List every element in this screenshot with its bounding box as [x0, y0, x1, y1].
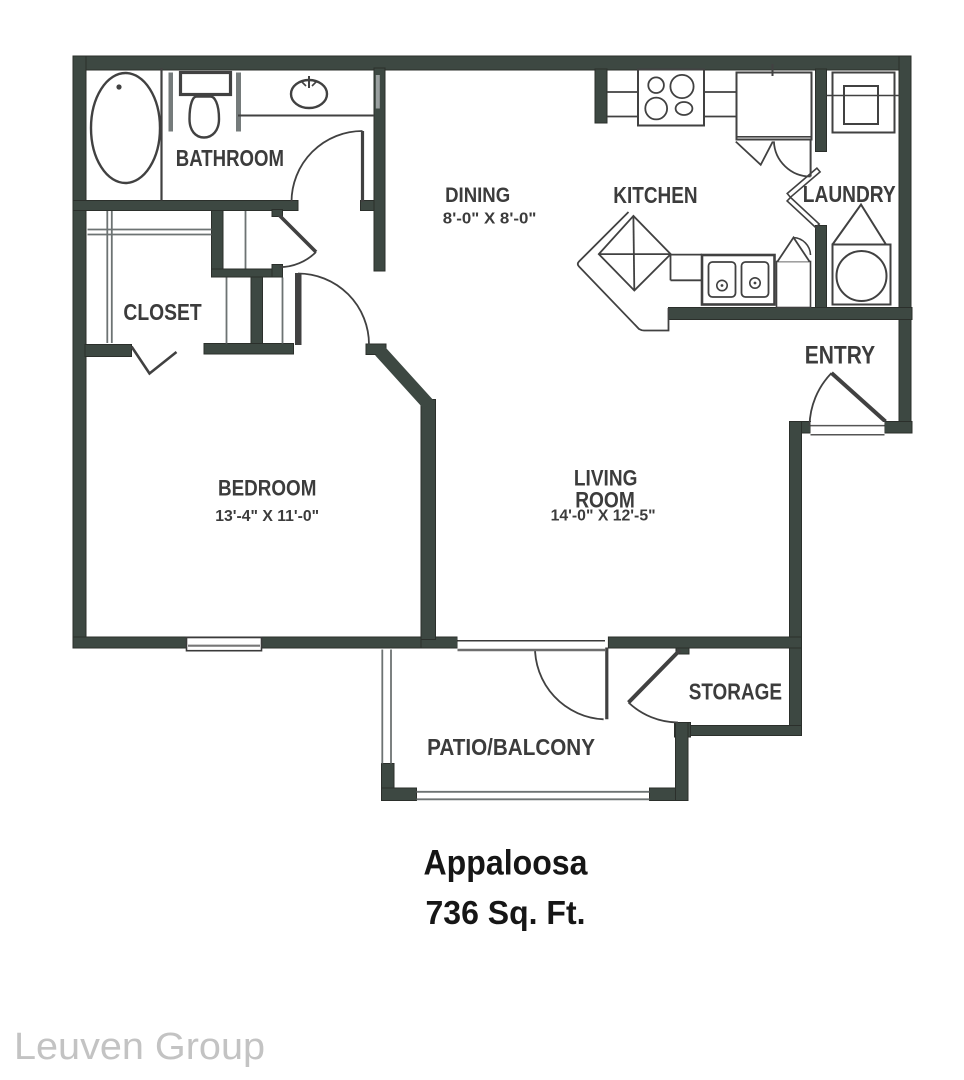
svg-text:STORAGE: STORAGE: [689, 678, 782, 704]
svg-text:ENTRY: ENTRY: [805, 341, 876, 369]
svg-text:PATIO/BALCONY: PATIO/BALCONY: [427, 734, 595, 760]
svg-text:14'-0" X 12'-5": 14'-0" X 12'-5": [551, 507, 656, 524]
svg-text:8'-0" X 8'-0": 8'-0" X 8'-0": [443, 210, 537, 227]
svg-text:KITCHEN: KITCHEN: [613, 182, 697, 208]
svg-text:13'-4" X 11'-0": 13'-4" X 11'-0": [215, 508, 319, 525]
svg-text:BEDROOM: BEDROOM: [218, 475, 316, 500]
svg-text:Appaloosa: Appaloosa: [424, 844, 588, 883]
svg-text:Leuven Group: Leuven Group: [14, 1026, 265, 1068]
svg-text:BATHROOM: BATHROOM: [176, 145, 284, 171]
svg-text:736 Sq. Ft.: 736 Sq. Ft.: [426, 894, 586, 931]
svg-text:LAUNDRY: LAUNDRY: [803, 181, 896, 207]
svg-text:DINING: DINING: [445, 184, 510, 207]
svg-text:CLOSET: CLOSET: [123, 299, 201, 325]
